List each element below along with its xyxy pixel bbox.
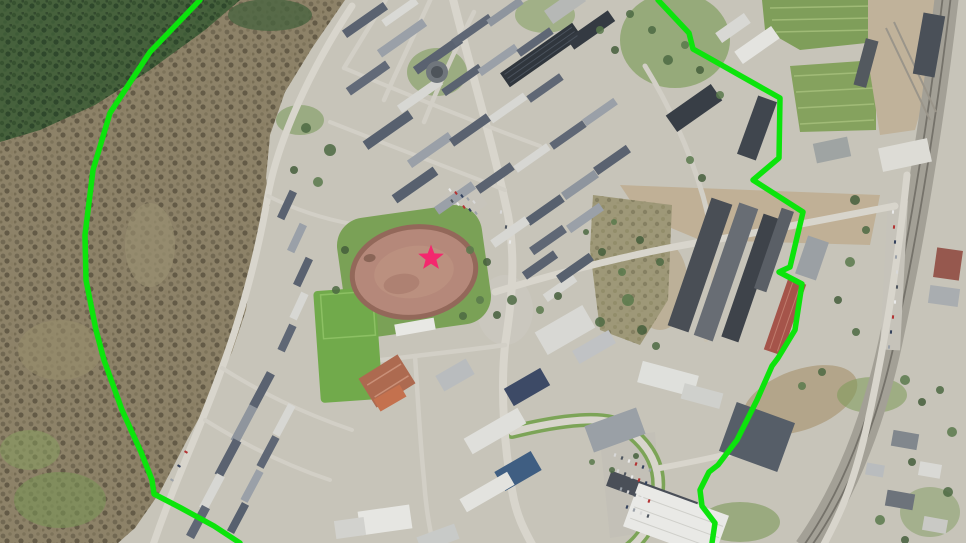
tree bbox=[290, 166, 298, 174]
tree bbox=[589, 459, 595, 465]
tree bbox=[696, 66, 704, 74]
car bbox=[896, 270, 898, 274]
car bbox=[896, 285, 898, 289]
tree bbox=[332, 286, 340, 294]
tree bbox=[507, 295, 517, 305]
car bbox=[893, 225, 895, 229]
tree bbox=[648, 26, 656, 34]
tree bbox=[636, 236, 644, 244]
tree bbox=[918, 398, 926, 406]
tree bbox=[798, 382, 806, 390]
tree bbox=[875, 515, 885, 525]
tree bbox=[622, 294, 634, 306]
tree bbox=[845, 257, 855, 267]
car bbox=[892, 210, 894, 214]
tree bbox=[301, 123, 311, 133]
tree bbox=[862, 226, 870, 234]
tree bbox=[476, 296, 484, 304]
tree bbox=[686, 156, 694, 164]
tree bbox=[818, 368, 826, 376]
tree bbox=[626, 10, 634, 18]
tree bbox=[850, 195, 860, 205]
tree bbox=[554, 292, 562, 300]
tree bbox=[459, 312, 467, 320]
tree bbox=[611, 46, 619, 54]
tree bbox=[681, 41, 689, 49]
aerial-map[interactable] bbox=[0, 0, 966, 543]
tree bbox=[313, 177, 323, 187]
tree bbox=[698, 174, 706, 182]
car bbox=[890, 330, 892, 334]
tree bbox=[341, 246, 349, 254]
car bbox=[895, 255, 897, 259]
tree bbox=[536, 306, 544, 314]
tree bbox=[611, 219, 617, 225]
tree bbox=[943, 487, 953, 497]
tree bbox=[324, 144, 336, 156]
tree bbox=[908, 458, 916, 466]
tree bbox=[583, 229, 589, 235]
tree bbox=[656, 258, 664, 266]
building bbox=[933, 247, 963, 280]
tree bbox=[936, 386, 944, 394]
car bbox=[894, 240, 896, 244]
tree bbox=[637, 325, 647, 335]
car bbox=[888, 345, 890, 349]
tree bbox=[483, 258, 491, 266]
tree bbox=[663, 55, 673, 65]
tree bbox=[609, 467, 615, 473]
tree bbox=[852, 328, 860, 336]
tree bbox=[834, 296, 842, 304]
car bbox=[892, 315, 894, 319]
tree bbox=[595, 317, 605, 327]
tree bbox=[598, 248, 606, 256]
tree bbox=[947, 427, 957, 437]
tree bbox=[900, 375, 910, 385]
tree bbox=[716, 91, 724, 99]
tree bbox=[633, 453, 639, 459]
tree bbox=[596, 26, 604, 34]
tree bbox=[466, 246, 474, 254]
aerial-basemap bbox=[0, 0, 966, 543]
tree bbox=[493, 311, 501, 319]
tree bbox=[618, 268, 626, 276]
tree bbox=[652, 342, 660, 350]
car bbox=[894, 300, 896, 304]
